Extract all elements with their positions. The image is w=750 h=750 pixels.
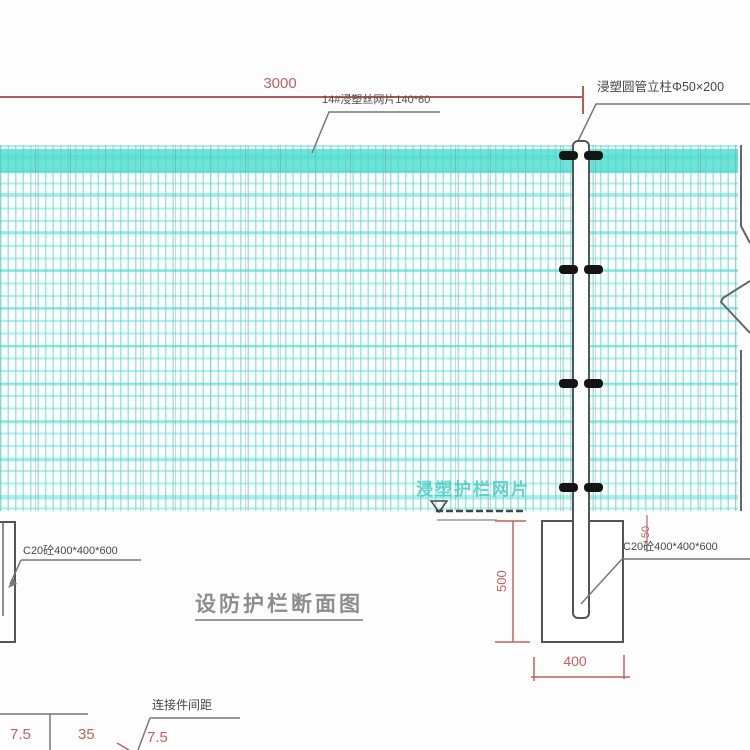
dimension-left-a: 7.5 (10, 727, 31, 744)
foundation-right-label: C20砼400*400*600 (623, 541, 718, 553)
break-symbol-upper (741, 145, 750, 243)
clamp-3-left (559, 379, 578, 388)
foundation-left-label: C20砼400*400*600 (23, 545, 118, 557)
mesh-panel-label: 14#浸塑丝网片140*60 (322, 94, 430, 106)
leader-post-label (578, 104, 750, 141)
dimension-embed-depth: 500 (495, 561, 509, 601)
dimension-foundation-width: 400 (545, 654, 605, 669)
clamp-4-right (584, 483, 603, 492)
bottom-red-tick (117, 743, 129, 750)
clamp-2-left (559, 265, 578, 274)
dimension-exposed-offset: 50 (640, 517, 652, 547)
dimension-left-c: 7.5 (147, 730, 168, 747)
post-label: 浸塑圆管立柱Φ50×200 (597, 81, 724, 95)
linework-layer (0, 0, 750, 750)
drawing-title: 设防护栏断面图 (195, 593, 363, 621)
clamp-1-right (584, 151, 603, 160)
dimension-span: 3000 (250, 76, 310, 93)
dimension-left-b: 35 (78, 727, 95, 744)
connector-spacing-label: 连接件间距 (152, 699, 212, 712)
fence-section-drawing: 浸塑护栏网片 (0, 0, 750, 750)
leader-mesh-label (312, 112, 440, 153)
clamp-2-right (584, 265, 603, 274)
clamp-3-right (584, 379, 603, 388)
clamp-4-left (559, 483, 578, 492)
break-symbol-zigzag (721, 281, 750, 333)
clamp-1-left (559, 151, 578, 160)
